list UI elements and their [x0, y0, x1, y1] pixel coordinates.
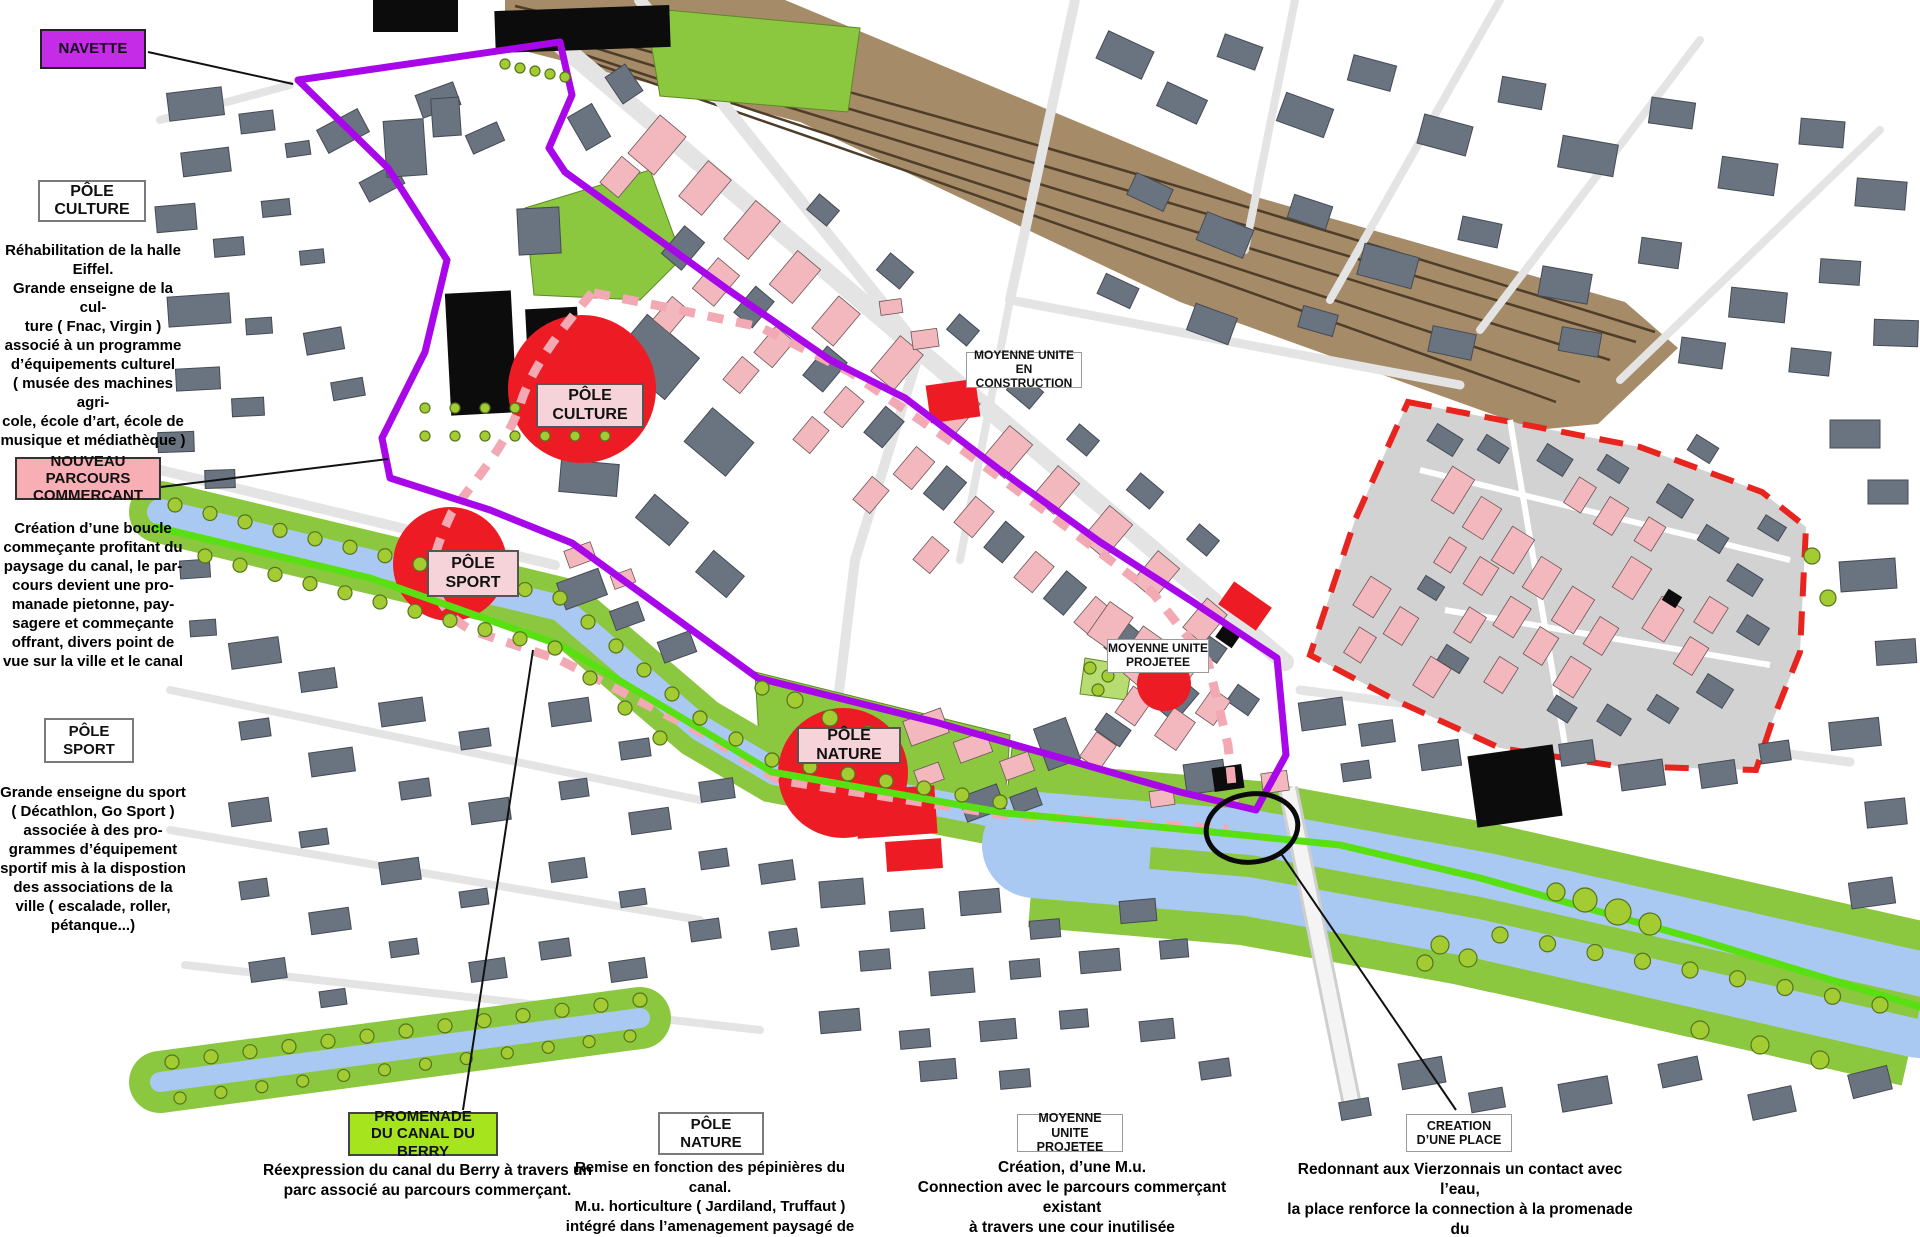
promenade-label-box: PROMENADE DU CANAL DU BERRY	[348, 1112, 498, 1156]
urban-plan-page: NAVETTE PÔLE CULTURE Réhabilitation de l…	[0, 0, 1920, 1237]
pole-sport-label-box: PÔLE SPORT	[44, 718, 134, 763]
moyenne-unite-projetee-description: Création, d’une M.u. Connection avec le …	[902, 1158, 1242, 1237]
moyenne-unite-projetee-label-box: MOYENNE UNITE PROJETEE	[1017, 1114, 1123, 1152]
nouveau-parcours-description: Création d’une boucle commeçante profita…	[2, 519, 184, 671]
urban-plan-map	[0, 0, 1920, 1237]
pole-culture-label-box: PÔLE CULTURE	[38, 180, 146, 222]
promenade-description: Réexpression du canal du Berry à travers…	[255, 1161, 600, 1201]
pole-nature-description: Remise en fonction des pépinières du can…	[560, 1158, 860, 1237]
map-pole-sport-label: PÔLE SPORT	[427, 550, 519, 597]
map-moyenne-unite-projetee-label: MOYENNE UNITE PROJETEE	[1107, 639, 1209, 673]
navette-label-box: NAVETTE	[40, 29, 146, 69]
map-moyenne-unite-construction-label: MOYENNE UNITE EN CONSTRUCTION	[966, 352, 1082, 388]
pole-nature-label-box: PÔLE NATURE	[658, 1112, 764, 1155]
map-pole-nature-label: PÔLE NATURE	[797, 727, 901, 764]
creation-place-description: Redonnant aux Vierzonnais un contact ave…	[1280, 1160, 1640, 1237]
creation-place-label-box: CREATION D’UNE PLACE	[1406, 1114, 1512, 1152]
pole-sport-description: Grande enseigne du sport ( Décathlon, Go…	[0, 783, 186, 935]
navette-leader-line	[148, 52, 293, 84]
nouveau-parcours-label-box: NOUVEAU PARCOURS COMMERCANT	[15, 457, 161, 500]
pole-culture-description: Réhabilitation de la halle Eiffel. Grand…	[0, 241, 186, 450]
map-pole-culture-label: PÔLE CULTURE	[536, 383, 644, 428]
parcours-leader-line	[161, 459, 388, 487]
